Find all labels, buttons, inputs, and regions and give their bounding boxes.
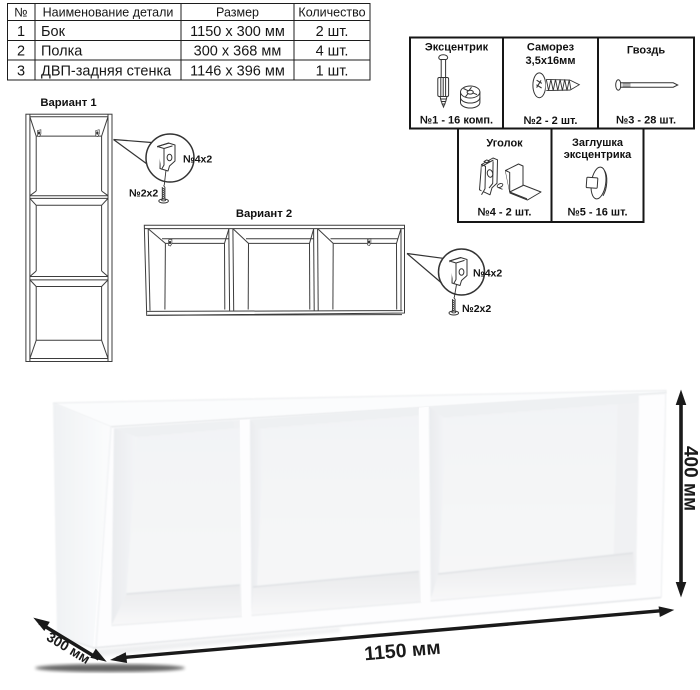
svg-text:Вариант 2: Вариант 2 [236, 208, 292, 220]
svg-text:Размер: Размер [216, 6, 259, 20]
svg-text:Эксцентрик: Эксцентрик [425, 42, 489, 54]
svg-text:№: № [14, 6, 27, 20]
svg-text:№4 - 2 шт.: №4 - 2 шт. [478, 206, 532, 218]
svg-text:№2 - 2 шт.: №2 - 2 шт. [524, 115, 578, 127]
svg-text:1146 х 396 мм: 1146 х 396 мм [190, 64, 285, 80]
svg-text:Бок: Бок [41, 24, 66, 40]
svg-text:1: 1 [17, 24, 25, 40]
svg-text:3: 3 [17, 64, 25, 80]
svg-text:300 х 368 мм: 300 х 368 мм [194, 44, 282, 60]
svg-text:1150 х 300 мм: 1150 х 300 мм [190, 24, 285, 40]
svg-text:№4х2: №4х2 [183, 154, 212, 166]
svg-text:№1 - 16 комп.: №1 - 16 комп. [420, 114, 493, 126]
svg-text:2 шт.: 2 шт. [316, 24, 349, 40]
svg-text:ДВП-задняя стенка: ДВП-задняя стенка [41, 64, 172, 80]
svg-text:эксцентрика: эксцентрика [564, 149, 632, 161]
svg-text:№2х2: №2х2 [129, 188, 158, 200]
svg-text:Заглушка: Заглушка [572, 137, 624, 149]
svg-text:Вариант 1: Вариант 1 [40, 97, 96, 109]
svg-text:1 шт.: 1 шт. [316, 64, 349, 80]
svg-text:Саморез: Саморез [527, 42, 575, 54]
svg-text:Наименование детали: Наименование детали [43, 6, 174, 20]
svg-text:№3 - 28 шт.: №3 - 28 шт. [616, 114, 676, 126]
svg-text:Полка: Полка [41, 44, 83, 60]
svg-text:Количество: Количество [298, 6, 365, 20]
svg-text:2: 2 [17, 44, 25, 60]
svg-text:№5 - 16 шт.: №5 - 16 шт. [567, 206, 627, 218]
svg-text:3,5х16мм: 3,5х16мм [526, 55, 576, 67]
svg-text:Гвоздь: Гвоздь [627, 45, 666, 57]
svg-text:Уголок: Уголок [486, 137, 523, 149]
svg-text:400 мм: 400 мм [680, 446, 700, 511]
svg-text:4 шт.: 4 шт. [316, 44, 349, 60]
svg-text:№2х2: №2х2 [462, 303, 491, 315]
svg-text:№4х2: №4х2 [473, 268, 502, 280]
svg-text:1150 мм: 1150 мм [363, 637, 441, 666]
